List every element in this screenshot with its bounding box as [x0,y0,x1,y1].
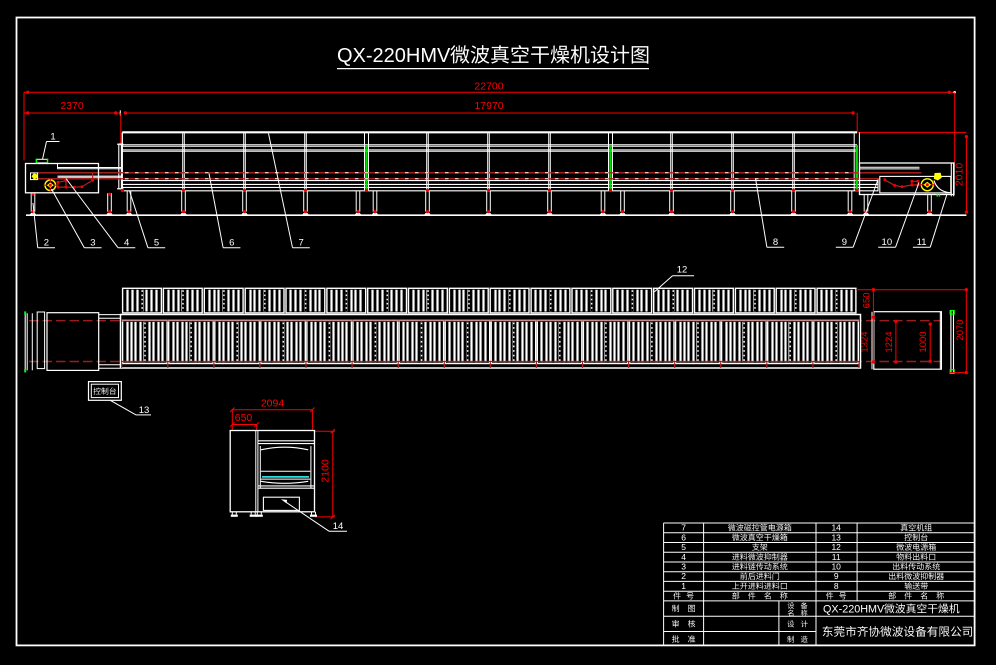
svg-text:4: 4 [681,552,686,562]
svg-text:650: 650 [862,292,873,308]
svg-text:1224: 1224 [884,331,895,352]
svg-text:10: 10 [882,237,893,248]
svg-text:10: 10 [831,561,841,571]
svg-text:5: 5 [154,238,159,249]
svg-text:12: 12 [677,265,688,276]
svg-text:1000: 1000 [918,331,929,352]
svg-text:17970: 17970 [474,100,503,112]
svg-text:14: 14 [333,521,344,532]
svg-text:QX-220HMV: QX-220HMV [823,604,885,616]
svg-text:8: 8 [773,237,778,248]
svg-text:6: 6 [229,238,234,249]
svg-text:1324: 1324 [859,331,870,352]
svg-text:2: 2 [681,571,686,581]
svg-text:2010: 2010 [953,163,965,187]
svg-text:2070: 2070 [955,319,966,340]
svg-text:7: 7 [681,523,686,533]
svg-text:11: 11 [917,237,927,248]
svg-text:9: 9 [842,237,847,248]
svg-text:650: 650 [235,412,253,424]
svg-text:14: 14 [831,523,841,533]
svg-text:5: 5 [681,542,686,552]
svg-text:9: 9 [834,571,839,581]
svg-text:12: 12 [831,542,841,552]
svg-text:11: 11 [832,552,841,562]
svg-text:3: 3 [681,561,686,571]
svg-text:1: 1 [50,131,55,142]
svg-text:6: 6 [681,532,686,542]
svg-text:13: 13 [139,405,150,416]
svg-text:2370: 2370 [60,100,84,112]
svg-text:22700: 22700 [474,81,503,93]
svg-text:3: 3 [90,238,95,249]
svg-text:2100: 2100 [320,459,332,483]
svg-text:QX-220HMV: QX-220HMV [337,45,451,67]
svg-text:2: 2 [44,238,49,249]
svg-text:4: 4 [124,238,129,249]
svg-text:13: 13 [831,532,841,542]
svg-text:8: 8 [834,581,839,591]
svg-text:7: 7 [299,238,304,249]
svg-text:2094: 2094 [261,398,285,410]
svg-text:1: 1 [681,581,686,591]
